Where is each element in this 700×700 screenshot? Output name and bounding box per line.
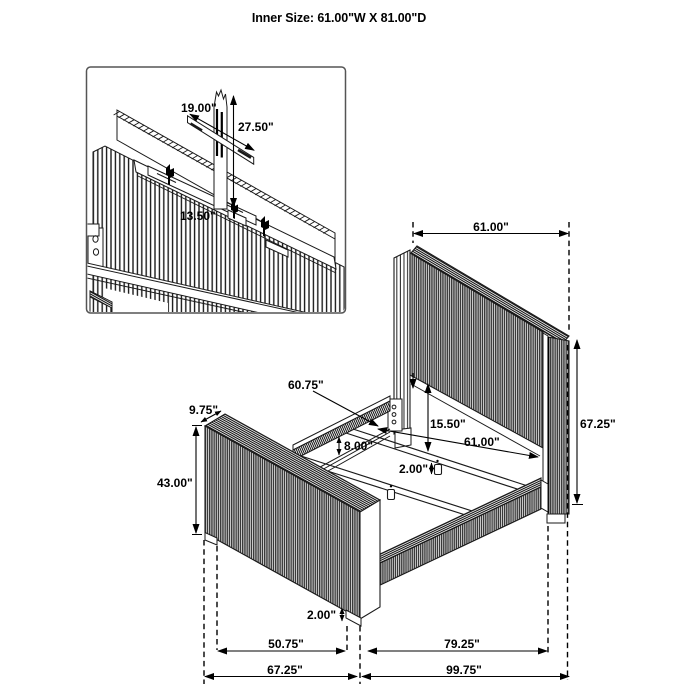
svg-text:8.00": 8.00" [344, 439, 373, 453]
svg-text:99.75": 99.75" [446, 663, 482, 677]
svg-text:2.00": 2.00" [399, 462, 428, 476]
svg-text:13.50": 13.50" [180, 209, 216, 223]
svg-text:Inner Size: 61.00"W X 81.00"D: Inner Size: 61.00"W X 81.00"D [252, 11, 426, 25]
svg-text:50.75": 50.75" [268, 637, 304, 651]
svg-text:79.25": 79.25" [444, 637, 480, 651]
svg-text:2.00": 2.00" [307, 608, 336, 622]
svg-text:27.50": 27.50" [238, 120, 274, 134]
svg-text:67.25": 67.25" [267, 663, 303, 677]
svg-text:15.50": 15.50" [430, 417, 466, 431]
svg-text:19.00": 19.00" [181, 101, 217, 115]
svg-text:43.00": 43.00" [157, 476, 193, 490]
svg-text:61.00": 61.00" [473, 220, 509, 234]
svg-text:60.75": 60.75" [288, 378, 324, 392]
svg-text:67.25": 67.25" [580, 417, 616, 431]
